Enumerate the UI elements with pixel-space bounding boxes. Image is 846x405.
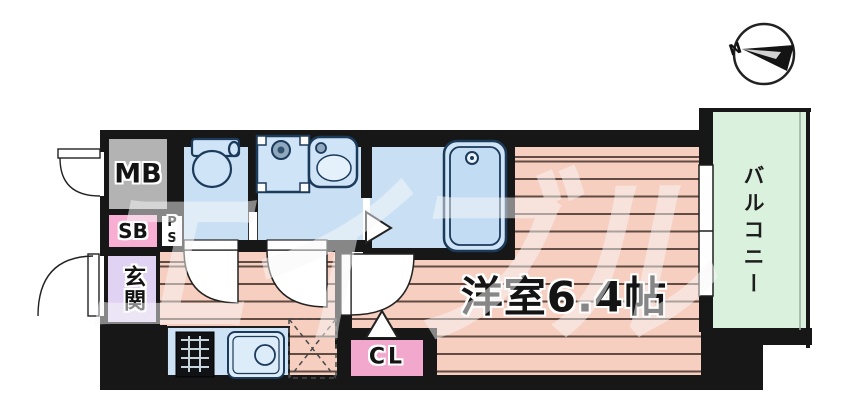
main-room-label: 洋室6.4帖	[461, 264, 667, 325]
floorplan-canvas: MB SB PS 玄関 CL 洋室6.4帖 バルコニー N エイブル	[0, 0, 846, 405]
closet-label: CL	[369, 345, 405, 370]
meter-box-label: MB	[114, 159, 161, 190]
kitchen-sink-icon	[228, 332, 284, 378]
refrigerator-space	[289, 319, 336, 378]
main-room-door	[341, 254, 414, 315]
closet-door-triangle	[366, 311, 398, 338]
stove-icon	[176, 332, 214, 377]
toilet-door	[184, 240, 238, 303]
balcony-window	[699, 165, 713, 296]
washbasin-icon	[309, 137, 357, 187]
pipe-space-label: PS	[165, 215, 180, 247]
balcony-label: バルコニー	[738, 165, 768, 300]
bathroom-door-triangle	[366, 212, 391, 243]
washroom-door	[267, 240, 327, 307]
meter-box-door	[58, 149, 100, 196]
shoe-box-label: SB	[118, 219, 148, 243]
toilet-icon	[192, 139, 239, 187]
washing-machine-icon	[257, 136, 309, 192]
entrance-label: 玄関	[116, 265, 148, 313]
entrance-door	[38, 254, 99, 316]
bathtub-icon	[444, 141, 506, 251]
